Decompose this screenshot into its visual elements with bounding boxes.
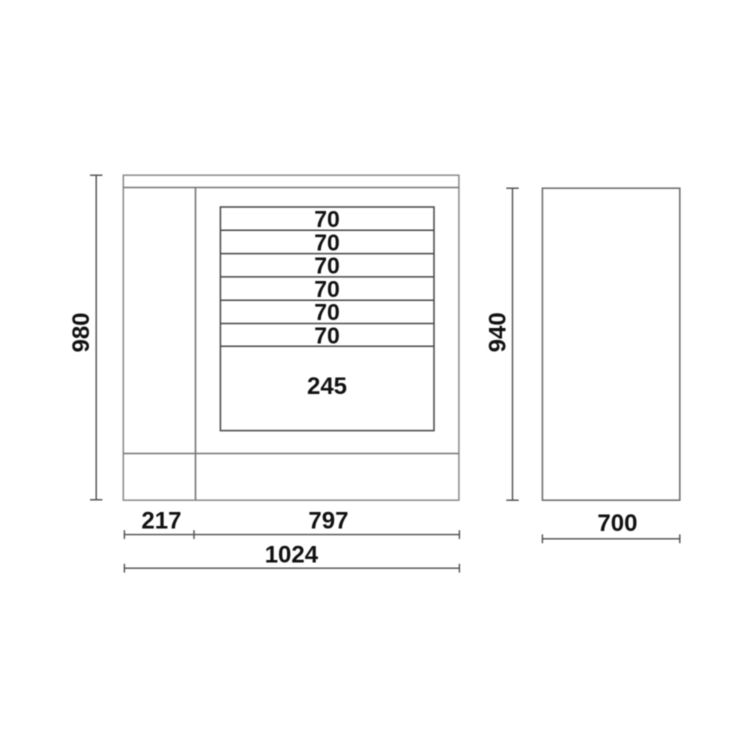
svg-text:70: 70	[314, 253, 340, 279]
svg-text:700: 700	[597, 510, 637, 537]
svg-text:797: 797	[308, 508, 348, 535]
svg-text:70: 70	[314, 276, 340, 302]
svg-text:217: 217	[141, 508, 181, 535]
svg-text:980: 980	[68, 312, 95, 352]
svg-text:70: 70	[314, 299, 340, 325]
svg-text:940: 940	[484, 312, 511, 352]
svg-text:70: 70	[314, 206, 340, 232]
svg-text:70: 70	[314, 322, 340, 348]
svg-text:70: 70	[314, 229, 340, 255]
svg-text:1024: 1024	[265, 542, 319, 569]
svg-text:245: 245	[307, 373, 347, 400]
